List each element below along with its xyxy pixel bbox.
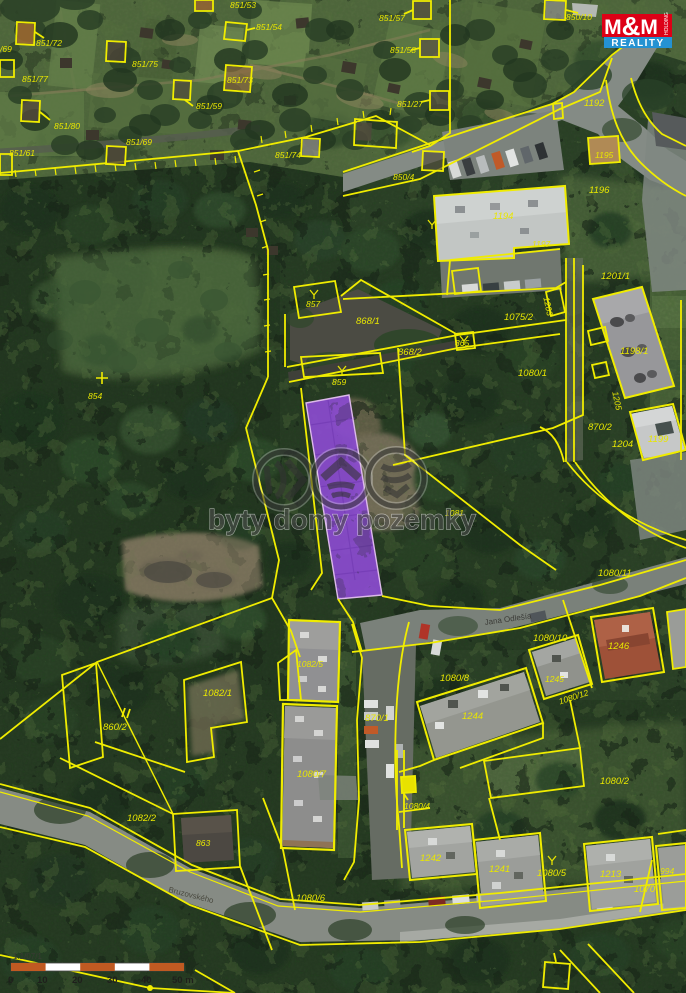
svg-text:1204: 1204	[612, 439, 633, 450]
svg-text:1075/2: 1075/2	[504, 312, 534, 323]
svg-text:857: 857	[306, 299, 320, 309]
svg-text:851/73: 851/73	[227, 75, 253, 85]
svg-text:870/2: 870/2	[588, 422, 612, 433]
svg-text:1245: 1245	[545, 674, 564, 684]
svg-text:868/1: 868/1	[356, 316, 380, 327]
svg-text:860/2: 860/2	[103, 722, 127, 733]
svg-text:851/53: 851/53	[230, 0, 256, 10]
svg-text:1201/1: 1201/1	[601, 271, 630, 282]
svg-text:994: 994	[660, 866, 674, 876]
svg-text:byty domy pozemky: byty domy pozemky	[208, 504, 476, 535]
svg-text:1080/5: 1080/5	[537, 868, 567, 879]
svg-text:1192: 1192	[584, 98, 605, 109]
svg-text:1244: 1244	[462, 711, 483, 722]
svg-text:1196: 1196	[589, 185, 610, 196]
svg-text:50 m: 50 m	[172, 975, 194, 986]
svg-text:1082/5: 1082/5	[297, 659, 323, 669]
svg-text:851/54: 851/54	[256, 22, 282, 32]
svg-text:1213: 1213	[600, 869, 622, 880]
svg-text:851/69: 851/69	[126, 137, 152, 147]
svg-text:851/77: 851/77	[22, 74, 48, 84]
svg-text:851/57: 851/57	[379, 13, 405, 23]
svg-text:859: 859	[332, 377, 346, 387]
svg-text:863: 863	[196, 838, 210, 848]
svg-text:1242: 1242	[420, 853, 442, 864]
svg-text:1080/6: 1080/6	[296, 893, 326, 904]
svg-text:850/4: 850/4	[393, 172, 415, 182]
svg-text:1080/2: 1080/2	[600, 776, 630, 787]
svg-text:851/72: 851/72	[36, 38, 62, 48]
svg-text:/69: /69	[0, 44, 12, 54]
svg-text:851/59: 851/59	[196, 101, 222, 111]
svg-text:854: 854	[88, 391, 102, 401]
svg-text:1246: 1246	[608, 641, 630, 652]
svg-text:851/75: 851/75	[132, 59, 158, 69]
svg-text:1080/11: 1080/11	[598, 568, 632, 579]
svg-text:1080/10: 1080/10	[533, 633, 568, 644]
svg-text:HOLDING: HOLDING	[664, 12, 670, 35]
svg-text:865: 865	[455, 338, 469, 348]
svg-text:1080/8: 1080/8	[440, 673, 470, 684]
svg-text:851/58: 851/58	[390, 45, 416, 55]
svg-text:20: 20	[72, 975, 83, 986]
svg-text:1080/1: 1080/1	[518, 368, 547, 379]
svg-text:870/1: 870/1	[365, 713, 389, 724]
svg-text:30: 30	[107, 975, 118, 986]
svg-text:1.1/07/1: 1.1/07/1	[13, 952, 42, 961]
svg-text:1199: 1199	[648, 434, 669, 445]
svg-text:1070: 1070	[634, 884, 656, 895]
svg-text:851/27: 851/27	[397, 99, 423, 109]
svg-text:850/10: 850/10	[566, 12, 592, 22]
svg-text:1241: 1241	[489, 864, 510, 875]
svg-text:1080/7: 1080/7	[297, 769, 327, 780]
svg-text:851/61: 851/61	[9, 148, 35, 158]
svg-text:1195: 1195	[595, 150, 614, 160]
svg-text:1197: 1197	[532, 239, 551, 249]
svg-text:851/74: 851/74	[275, 150, 301, 160]
svg-text:868/2: 868/2	[398, 347, 422, 358]
svg-text:851/80: 851/80	[54, 121, 80, 131]
svg-text:0: 0	[8, 975, 13, 986]
svg-text:REALITY: REALITY	[611, 38, 664, 49]
svg-text:M&M: M&M	[604, 11, 658, 41]
svg-text:10: 10	[37, 975, 48, 986]
svg-text:1194: 1194	[493, 211, 513, 222]
svg-text:40: 40	[141, 975, 152, 986]
svg-text:1080/4: 1080/4	[404, 801, 430, 811]
svg-text:1082/2: 1082/2	[127, 813, 157, 824]
svg-text:1198/1: 1198/1	[620, 346, 648, 357]
svg-text:1082/1: 1082/1	[203, 688, 232, 699]
